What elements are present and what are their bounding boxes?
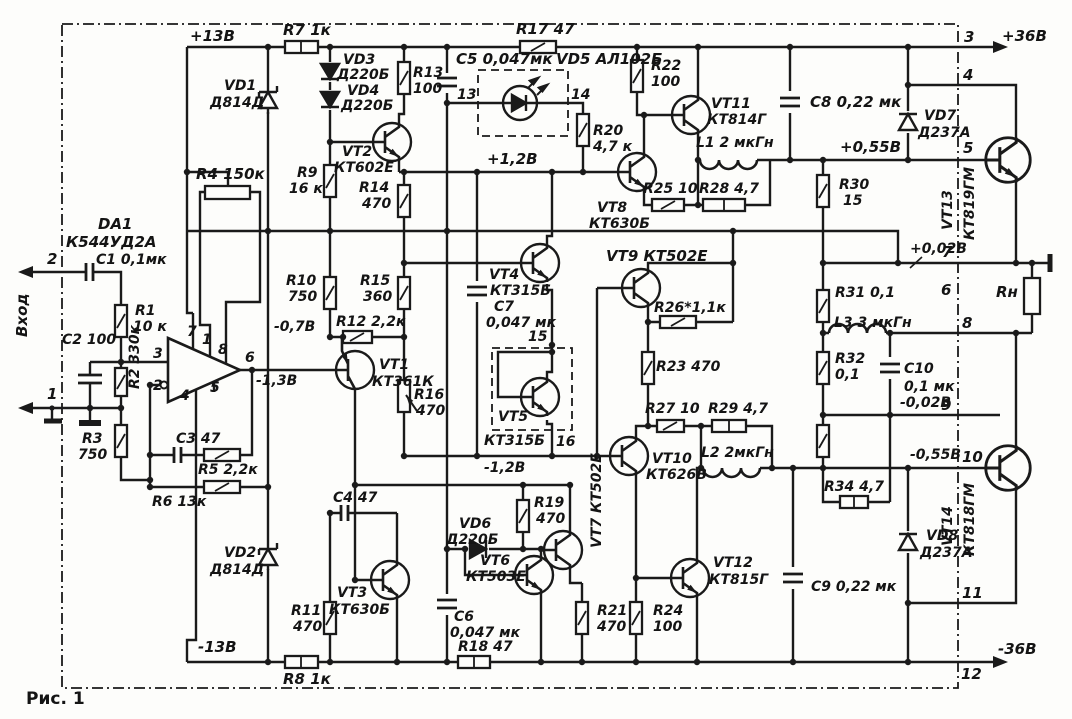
- label-VT12-type: КТ815Г: [709, 572, 769, 588]
- label-pin5: 5: [963, 139, 973, 157]
- label-VT10-type: КТ626В: [646, 467, 707, 483]
- label-C5: C5 0,047мк: [456, 50, 553, 68]
- label-R25: R25 10: [643, 181, 698, 197]
- label-C2: C2 100: [62, 332, 116, 348]
- label-input: Вход: [13, 293, 31, 337]
- label-R12: R12 2,2к: [336, 314, 406, 330]
- transistor-VT11: [672, 96, 710, 134]
- transistor-VT14: [986, 446, 1030, 490]
- label-C9: C9 0,22 мк: [811, 579, 897, 595]
- capacitor-C9-mask: [781, 567, 805, 589]
- label-R32-value: 0,1: [835, 367, 860, 383]
- schematic-canvas: +13В R7 1к R17 47 3 +36В VD3 Д220Б VD4 Д…: [0, 0, 1072, 719]
- label-R29: R29 4,7: [708, 401, 768, 417]
- label-VT4: VT4: [489, 267, 519, 283]
- label-C3: C3 47: [176, 431, 221, 447]
- label-R18: R18 47: [458, 639, 513, 655]
- label-VT13: VT13: [940, 190, 956, 230]
- label-R10: R10: [286, 273, 317, 289]
- label-VT5: VT5: [498, 409, 528, 425]
- label-C10-value: 0,1 мк: [904, 379, 955, 395]
- label-VT3-type: КТ630Б: [329, 602, 390, 618]
- label-C4: C4 47: [333, 490, 378, 506]
- label-R4: R4 150к: [196, 165, 266, 183]
- label-VD2: VD2: [224, 545, 256, 561]
- label-plus36v: +36В: [1002, 27, 1047, 45]
- figure-caption: Рис. 1: [26, 689, 85, 709]
- label-R8: R8 1к: [283, 670, 332, 688]
- label-R28: R28 4,7: [699, 181, 759, 197]
- label-plus1v2: +1,2В: [487, 150, 538, 168]
- transistor-VT10: [610, 437, 648, 475]
- label-pin1: 1: [47, 385, 57, 403]
- label-VT2-type: КТ602Е: [334, 160, 394, 176]
- label-L3: L3 3 мкГн: [834, 315, 912, 331]
- label-VT3: VT3: [337, 585, 367, 601]
- capacitor-C8-mask: [778, 91, 802, 113]
- label-R22: R22: [651, 58, 681, 74]
- label-VT2: VT2: [342, 144, 372, 160]
- label-VD1-type: Д814Д: [209, 95, 264, 111]
- label-R7: R7 1к: [283, 21, 332, 39]
- label-VD1: VD1: [224, 78, 256, 94]
- label-R13-value: 100: [413, 81, 442, 97]
- label-R6: R6 13к: [152, 494, 207, 510]
- label-R23: R23 470: [656, 359, 721, 375]
- transistor-VT2: [373, 123, 411, 161]
- label-R24: R24: [653, 603, 683, 619]
- label-VT9: VT9 КТ502Е: [606, 247, 708, 265]
- label-R5: R5 2,2к: [198, 462, 258, 478]
- label-R31: R31 0,1: [835, 285, 895, 301]
- diode-VD8: [896, 531, 920, 553]
- label-pin8: 8: [962, 314, 972, 332]
- label-R24-value: 100: [653, 619, 682, 635]
- label-minus0v7: -0,7В: [274, 319, 315, 335]
- diode-VD7: [896, 111, 920, 133]
- label-R21: R21: [597, 603, 627, 619]
- label-minus36v: -36В: [998, 640, 1037, 658]
- label-VT11: VT11: [711, 96, 751, 112]
- label-pin12: 12: [961, 665, 982, 683]
- label-R2: R2 330к: [127, 324, 143, 389]
- opamp-pin4: 4: [179, 388, 190, 404]
- label-R1: R1: [135, 303, 156, 319]
- label-R26: R26*1,1к: [654, 300, 726, 316]
- label-L2: L2 2мкГн: [701, 445, 774, 461]
- transistor-VT13: [986, 138, 1030, 182]
- label-VT5-type: КТ315Б: [484, 433, 545, 449]
- capacitor-C10-mask: [878, 357, 902, 379]
- label-VT4-type: КТ315Б: [490, 283, 551, 299]
- label-R20-value: 4,7 к: [592, 139, 633, 155]
- opamp-pin2: 2: [153, 378, 163, 394]
- opamp-pin1: 1: [202, 332, 212, 348]
- label-R34: R34 4,7: [824, 479, 884, 495]
- label-L1: L1 2 мкГн: [696, 135, 774, 151]
- label-minus1v2: -1,2В: [484, 460, 525, 476]
- label-pin14: 14: [571, 87, 590, 103]
- label-R9-value: 16 к: [289, 181, 323, 197]
- label-VT7: VT7 КТ502Е: [589, 453, 605, 548]
- label-DA1: DA1: [98, 215, 133, 233]
- label-VD4: VD4: [347, 83, 379, 99]
- label-R21-value: 470: [596, 619, 626, 635]
- label-plus0v55: +0,55В: [840, 138, 901, 156]
- label-C8: C8 0,22 мк: [810, 93, 902, 111]
- label-R11: R11: [291, 603, 321, 619]
- label-R19-value: 470: [535, 511, 565, 527]
- label-R30: R30: [839, 177, 870, 193]
- label-minus0v55: -0,55В: [910, 447, 961, 463]
- label-C10: C10: [904, 361, 934, 377]
- label-pin16: 16: [556, 434, 576, 450]
- transistor-VT12: [671, 559, 709, 597]
- diode-VD4: [319, 90, 341, 110]
- label-pin11: 11: [962, 584, 983, 602]
- label-R16: R16: [414, 387, 445, 403]
- schematic-page: +13В R7 1к R17 47 3 +36В VD3 Д220Б VD4 Д…: [0, 0, 1072, 719]
- label-VT13-type: КТ819ГМ: [962, 167, 978, 240]
- label-R15-value: 360: [363, 289, 392, 305]
- label-R15: R15: [360, 273, 391, 289]
- capacitor-C7-mask: [465, 281, 489, 302]
- label-R3: R3: [82, 431, 103, 447]
- label-VT8-type: КТ630Б: [589, 216, 650, 232]
- opamp-pin8: 8: [218, 342, 228, 358]
- label-R14: R14: [359, 180, 389, 196]
- label-VT8: VT8: [597, 200, 627, 216]
- label-pin2: 2: [47, 250, 57, 268]
- label-VD6-type: Д220Б: [445, 532, 498, 548]
- label-VT6: VT6: [480, 553, 510, 569]
- transistor-VT7: [544, 531, 582, 569]
- label-R20: R20: [593, 123, 624, 139]
- label-VD3: VD3: [343, 52, 375, 68]
- label-plus13v: +13В: [190, 27, 235, 45]
- label-VT6-type: КТ503Е: [466, 569, 526, 585]
- transistor-VT3: [371, 561, 409, 599]
- label-pin4: 4: [962, 66, 973, 84]
- label-VD8-type: Д237А: [919, 545, 973, 561]
- label-VD8: VD8: [926, 528, 958, 544]
- label-VD7: VD7: [924, 108, 956, 124]
- label-pin3: 3: [964, 28, 974, 46]
- label-R10-value: 750: [288, 289, 317, 305]
- label-VT12: VT12: [713, 555, 753, 571]
- label-C6: C6: [454, 609, 474, 625]
- label-C7: C7: [494, 299, 514, 315]
- label-pin13: 13: [457, 87, 476, 103]
- label-C1: C1 0,1мк: [96, 252, 167, 268]
- label-R13: R13: [413, 65, 443, 81]
- label-R16-value: 470: [415, 403, 445, 419]
- label-R14-value: 470: [361, 196, 391, 212]
- label-R17: R17 47: [516, 20, 575, 38]
- label-R3-value: 750: [78, 447, 107, 463]
- label-pin10: 10: [962, 448, 983, 466]
- opamp-pin5: 5: [210, 380, 220, 396]
- label-pin6: 6: [941, 281, 951, 299]
- label-pin15: 15: [528, 329, 548, 345]
- label-minus13v: -13В: [198, 638, 237, 656]
- label-R27: R27 10: [645, 401, 700, 417]
- opamp-pin7: 7: [187, 324, 197, 340]
- label-R11-value: 470: [292, 619, 322, 635]
- label-R30-value: 15: [843, 193, 863, 209]
- resistor-Rn-load: [1024, 278, 1040, 314]
- label-VD3-type: Д220Б: [336, 67, 389, 83]
- label-plus0v02: +0,02В: [910, 241, 967, 257]
- label-VT11-type: КТ814Г: [707, 112, 767, 128]
- label-DA1-type: К544УД2А: [66, 233, 157, 251]
- label-minus0v02: -0,02В: [900, 395, 951, 411]
- label-VT10: VT10: [652, 451, 692, 467]
- label-R32: R32: [835, 351, 865, 367]
- label-VD4-type: Д220Б: [340, 98, 393, 114]
- label-minus1v3: -1,3В: [256, 373, 297, 389]
- label-R22-value: 100: [651, 74, 680, 90]
- label-VD2-type: Д814Д: [209, 562, 264, 578]
- label-VD6: VD6: [459, 516, 491, 532]
- opamp-pin3: 3: [153, 346, 163, 362]
- label-R19: R19: [534, 495, 565, 511]
- opamp-pin6: 6: [245, 350, 255, 366]
- label-VT1: VT1: [379, 357, 409, 373]
- transistor-VT4: [521, 244, 559, 282]
- resistor-R4: [205, 186, 250, 199]
- label-VD5: VD5 АЛ102Б: [556, 50, 663, 68]
- label-R9: R9: [297, 165, 318, 181]
- label-Rn-load: Rн: [996, 283, 1018, 301]
